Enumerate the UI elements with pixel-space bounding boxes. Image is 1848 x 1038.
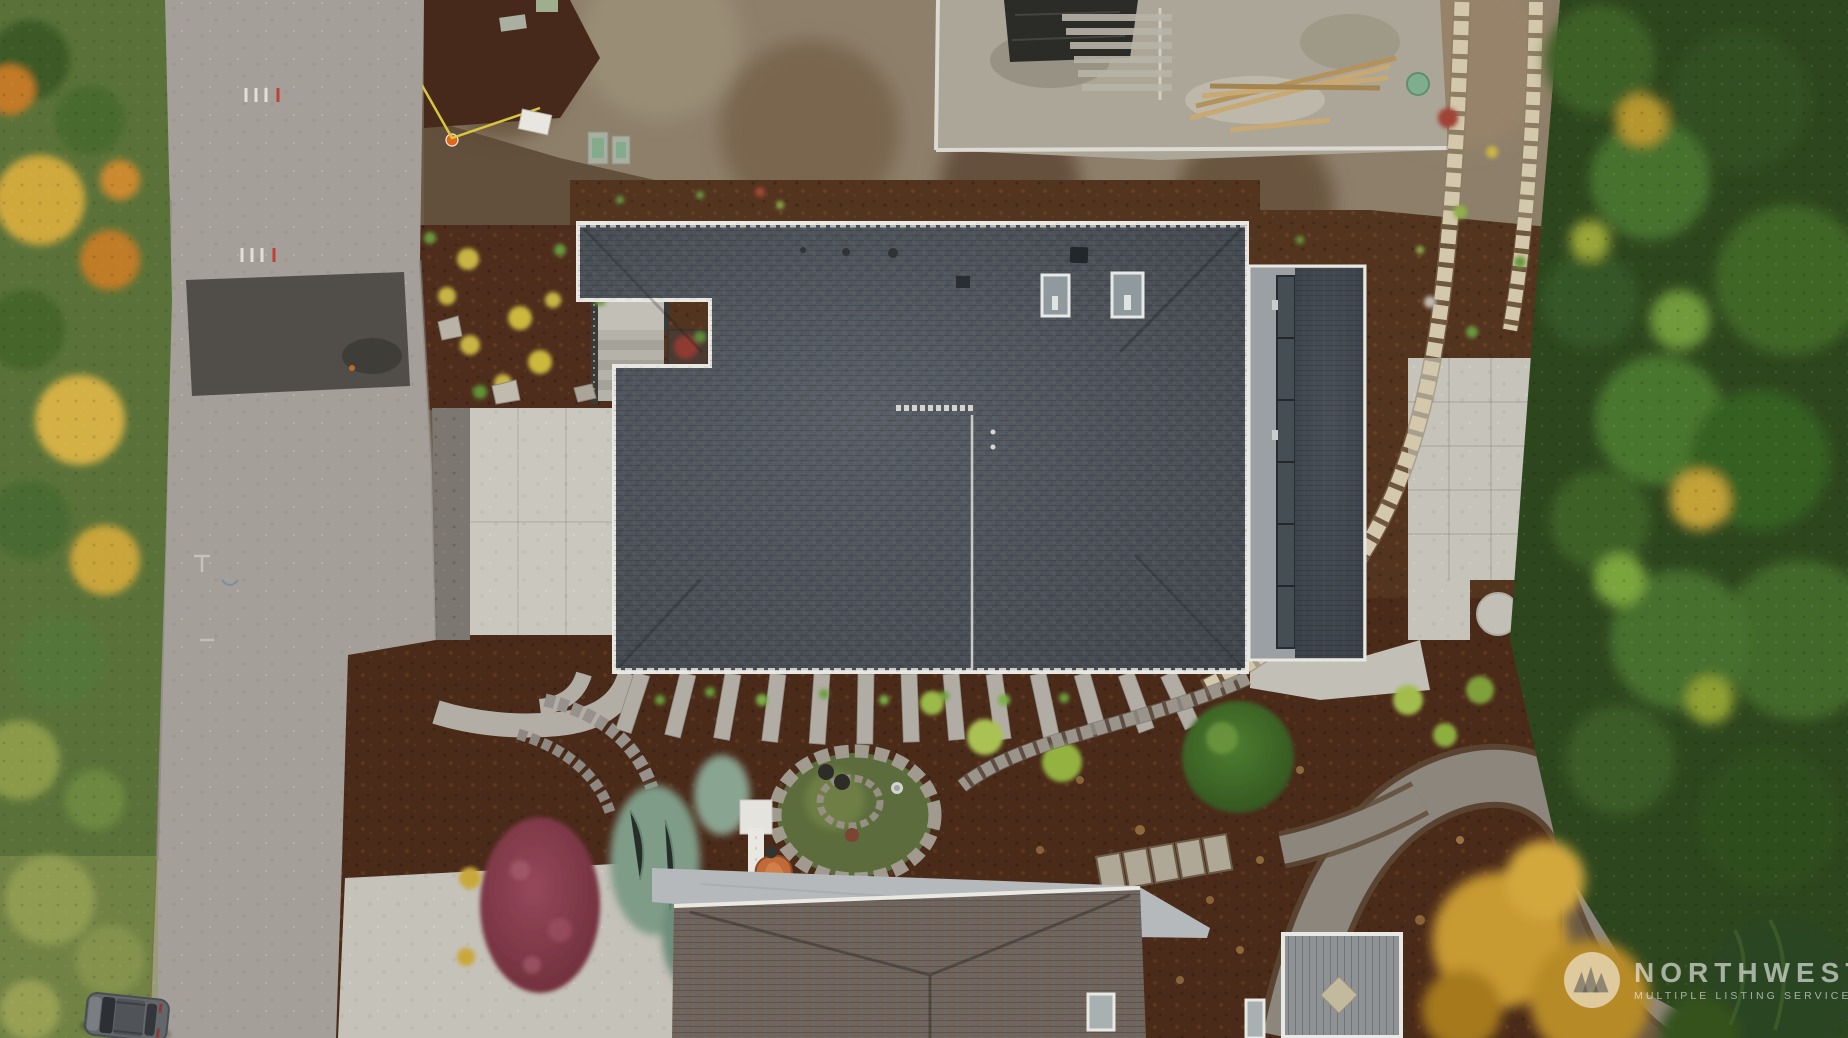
wood-deck: [1282, 933, 1402, 1038]
driveway: [470, 408, 614, 635]
neighbor-skylight: [1088, 994, 1114, 1030]
roof-right-wing: [1249, 266, 1365, 660]
mls-watermark: NORTHWEST MULTIPLE LISTING SERVICE®: [1563, 951, 1848, 1009]
watermark-tagline: MULTIPLE LISTING SERVICE®: [1634, 990, 1848, 1002]
retaining-wall-line: [936, 0, 938, 150]
mountain-peaks-icon: [1563, 951, 1621, 1009]
main-house-roof: [578, 223, 1365, 672]
aerial-photo: NORTHWEST MULTIPLE LISTING SERVICE®: [0, 0, 1848, 1038]
asphalt-patch: [186, 272, 410, 396]
utility-marker: [1407, 73, 1429, 95]
scene-graphic: [0, 0, 1848, 1038]
watermark-brand: NORTHWEST: [1634, 958, 1848, 987]
autumn-foliage-strip: [0, 0, 172, 1038]
conifer-bush: [1182, 701, 1294, 813]
